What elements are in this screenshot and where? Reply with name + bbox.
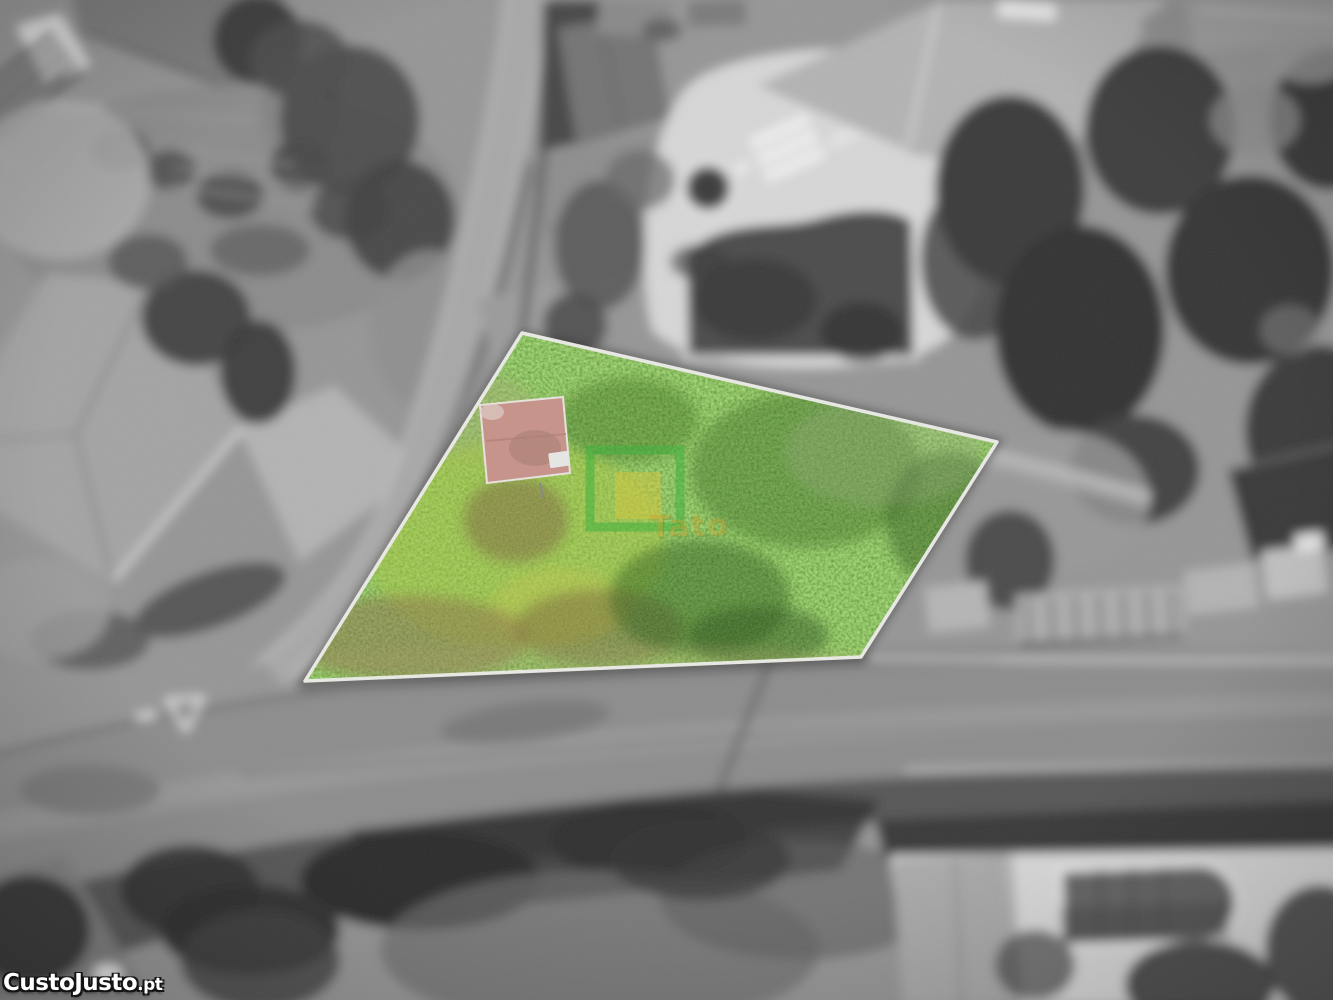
vignette [0, 0, 1333, 1000]
brand-watermark: CustoJusto.pt [3, 972, 162, 995]
aerial-photo [0, 0, 1333, 1000]
logo-text-watermark: Tato [650, 511, 731, 543]
brand-name: CustoJusto [3, 970, 137, 996]
listing-photo: Tato CustoJusto.pt [0, 0, 1333, 1000]
brand-tld: .pt [137, 975, 162, 995]
